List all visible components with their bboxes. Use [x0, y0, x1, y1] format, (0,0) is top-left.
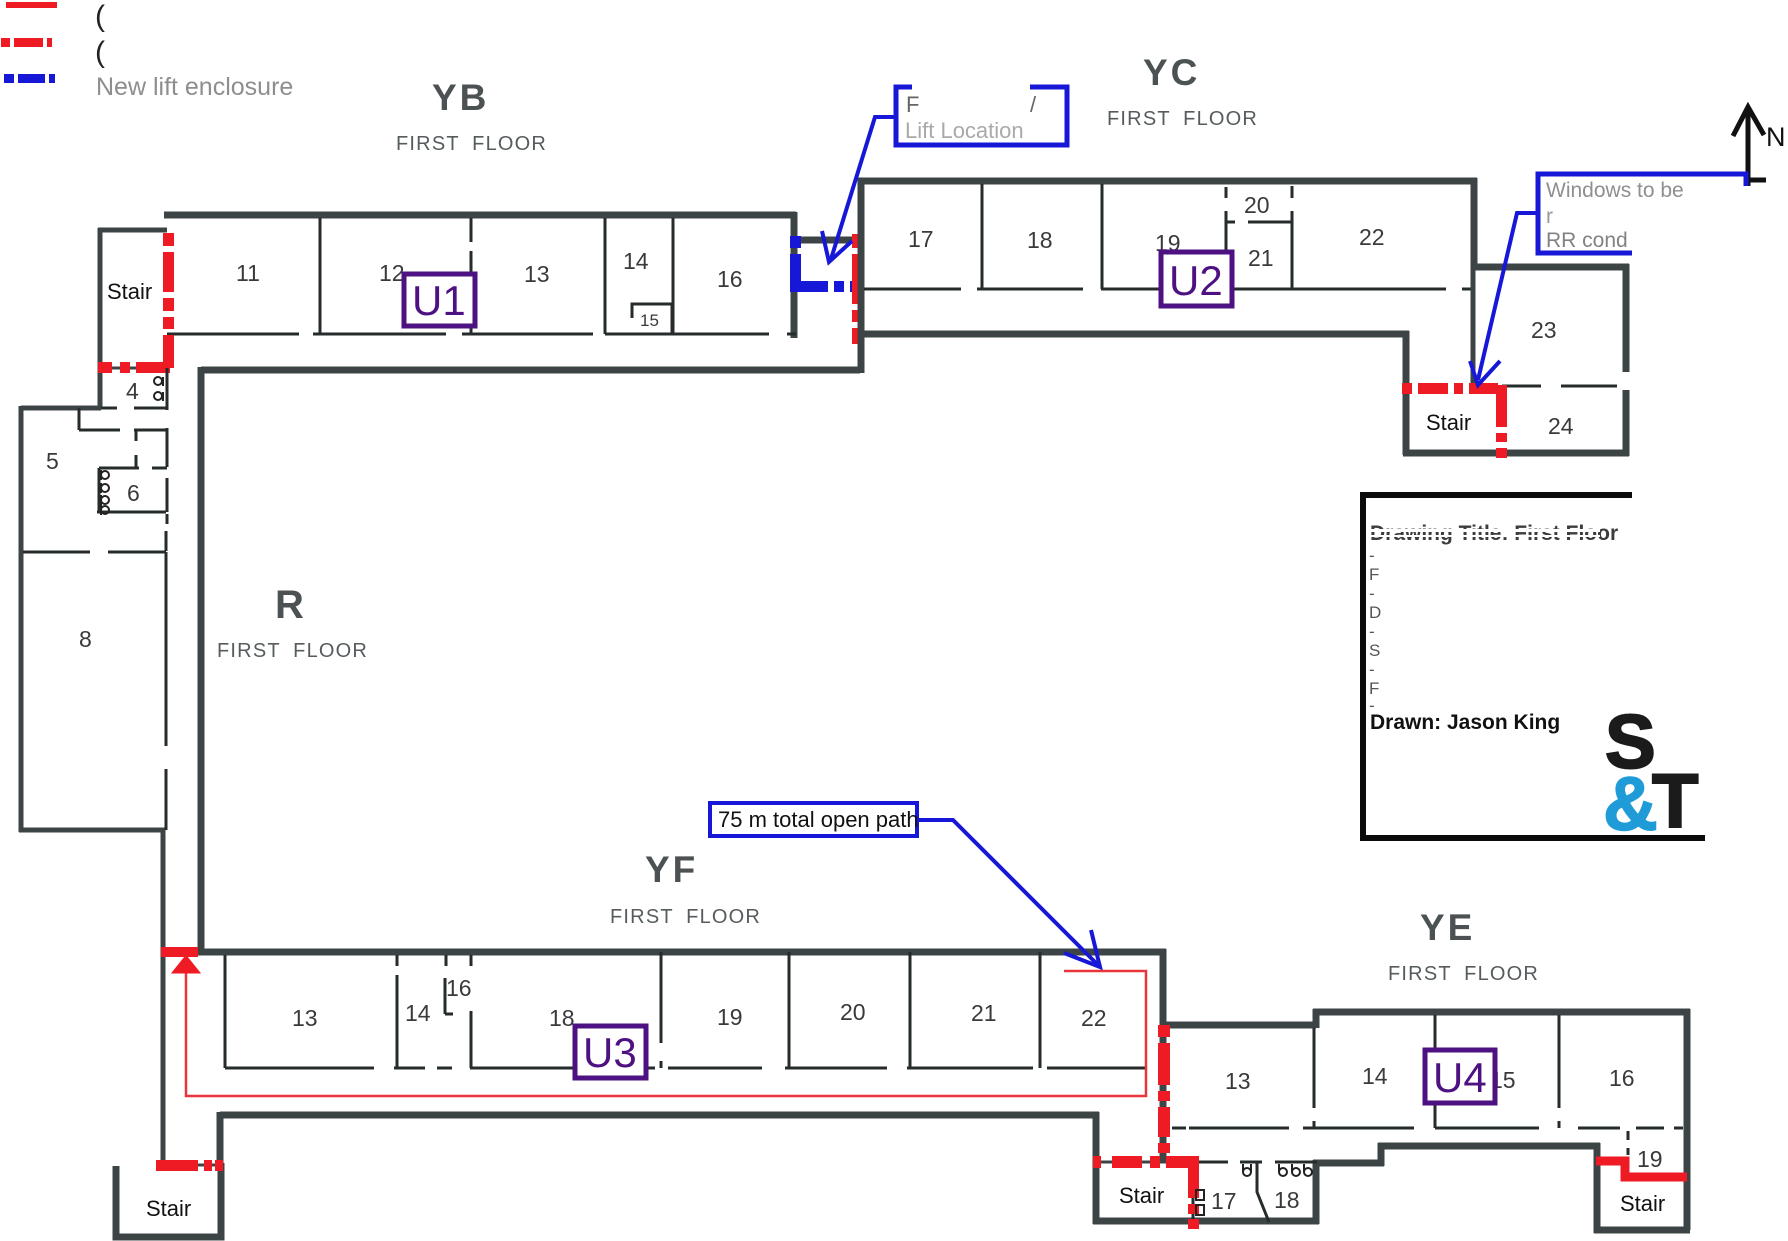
svg-text:U3: U3 [583, 1029, 637, 1076]
svg-text:19: 19 [1637, 1146, 1663, 1172]
svg-text:-: - [1369, 584, 1375, 603]
svg-text:r: r [1546, 205, 1553, 228]
svg-text:11: 11 [236, 260, 260, 286]
svg-text:18: 18 [1274, 1187, 1300, 1213]
svg-text:-: - [1369, 660, 1375, 679]
svg-text:S: S [1369, 641, 1380, 660]
svg-text:R: R [275, 583, 304, 627]
svg-text:21: 21 [971, 1000, 997, 1026]
svg-text:Windows to be: Windows to be [1546, 179, 1684, 202]
svg-text:75 m total open path: 75 m total open path [718, 807, 919, 832]
svg-text:13: 13 [524, 261, 550, 287]
svg-text:-: - [1369, 546, 1375, 565]
svg-text:Drawing Title: First Floor: Drawing Title: First Floor [1370, 522, 1618, 545]
svg-text:FIRST FLOOR: FIRST FLOOR [1388, 963, 1539, 985]
svg-text:16: 16 [446, 975, 472, 1001]
svg-text:U4: U4 [1433, 1054, 1487, 1101]
svg-text:YC: YC [1143, 52, 1200, 93]
svg-text:20: 20 [840, 999, 866, 1025]
svg-text:Stair: Stair [107, 279, 152, 304]
svg-text:Lift Location: Lift Location [905, 118, 1024, 143]
svg-text:8: 8 [79, 626, 92, 652]
svg-text:14: 14 [623, 248, 649, 274]
svg-text:N: N [1766, 122, 1786, 152]
svg-text:YB: YB [432, 77, 489, 118]
svg-text:Stair: Stair [1119, 1183, 1164, 1208]
svg-text:RR cond: RR cond [1546, 229, 1628, 252]
svg-text:Drawn: Jason King: Drawn: Jason King [1370, 711, 1560, 734]
svg-text:YE: YE [1420, 907, 1475, 948]
svg-text:20: 20 [1244, 192, 1270, 218]
svg-text:13: 13 [292, 1005, 318, 1031]
svg-text:21: 21 [1248, 245, 1274, 271]
svg-text:24: 24 [1548, 413, 1574, 439]
svg-text:6: 6 [127, 480, 140, 506]
svg-text:15: 15 [640, 311, 659, 330]
svg-text:16: 16 [717, 266, 743, 292]
svg-text:D: D [1369, 603, 1381, 622]
svg-text:22: 22 [1081, 1005, 1107, 1031]
svg-text:23: 23 [1531, 317, 1557, 343]
svg-text:14: 14 [1362, 1063, 1388, 1089]
svg-text:U1: U1 [412, 277, 466, 324]
svg-text:F: F [1369, 565, 1379, 584]
svg-text:FIRST FLOOR: FIRST FLOOR [1107, 108, 1258, 130]
svg-text:12: 12 [379, 260, 405, 286]
svg-text:19: 19 [717, 1004, 743, 1030]
svg-text:F: F [906, 92, 919, 117]
svg-text:18: 18 [549, 1005, 575, 1031]
svg-text:-: - [1369, 622, 1375, 641]
svg-text:13: 13 [1225, 1068, 1251, 1094]
svg-text:FIRST FLOOR: FIRST FLOOR [610, 906, 761, 928]
svg-text:16: 16 [1609, 1065, 1635, 1091]
svg-text:T: T [1652, 759, 1698, 844]
svg-text:U2: U2 [1169, 257, 1223, 304]
svg-text:/: / [1030, 92, 1037, 117]
svg-text:14: 14 [405, 1000, 431, 1026]
svg-text:(: ( [95, 0, 105, 33]
svg-text:4: 4 [126, 378, 139, 404]
svg-text:Stair: Stair [1620, 1191, 1665, 1216]
svg-text:New lift enclosure: New lift enclosure [96, 73, 293, 101]
svg-text:5: 5 [46, 448, 59, 474]
svg-text:17: 17 [1211, 1188, 1237, 1214]
svg-text:22: 22 [1359, 224, 1385, 250]
svg-text:(: ( [95, 36, 105, 69]
svg-text:Stair: Stair [146, 1196, 191, 1221]
svg-text:18: 18 [1027, 227, 1053, 253]
svg-text:YF: YF [645, 849, 698, 890]
svg-text:Stair: Stair [1426, 410, 1471, 435]
svg-text:FIRST FLOOR: FIRST FLOOR [396, 133, 547, 155]
svg-text:17: 17 [908, 226, 934, 252]
svg-text:&: & [1603, 762, 1658, 847]
svg-text:FIRST FLOOR: FIRST FLOOR [217, 640, 368, 662]
